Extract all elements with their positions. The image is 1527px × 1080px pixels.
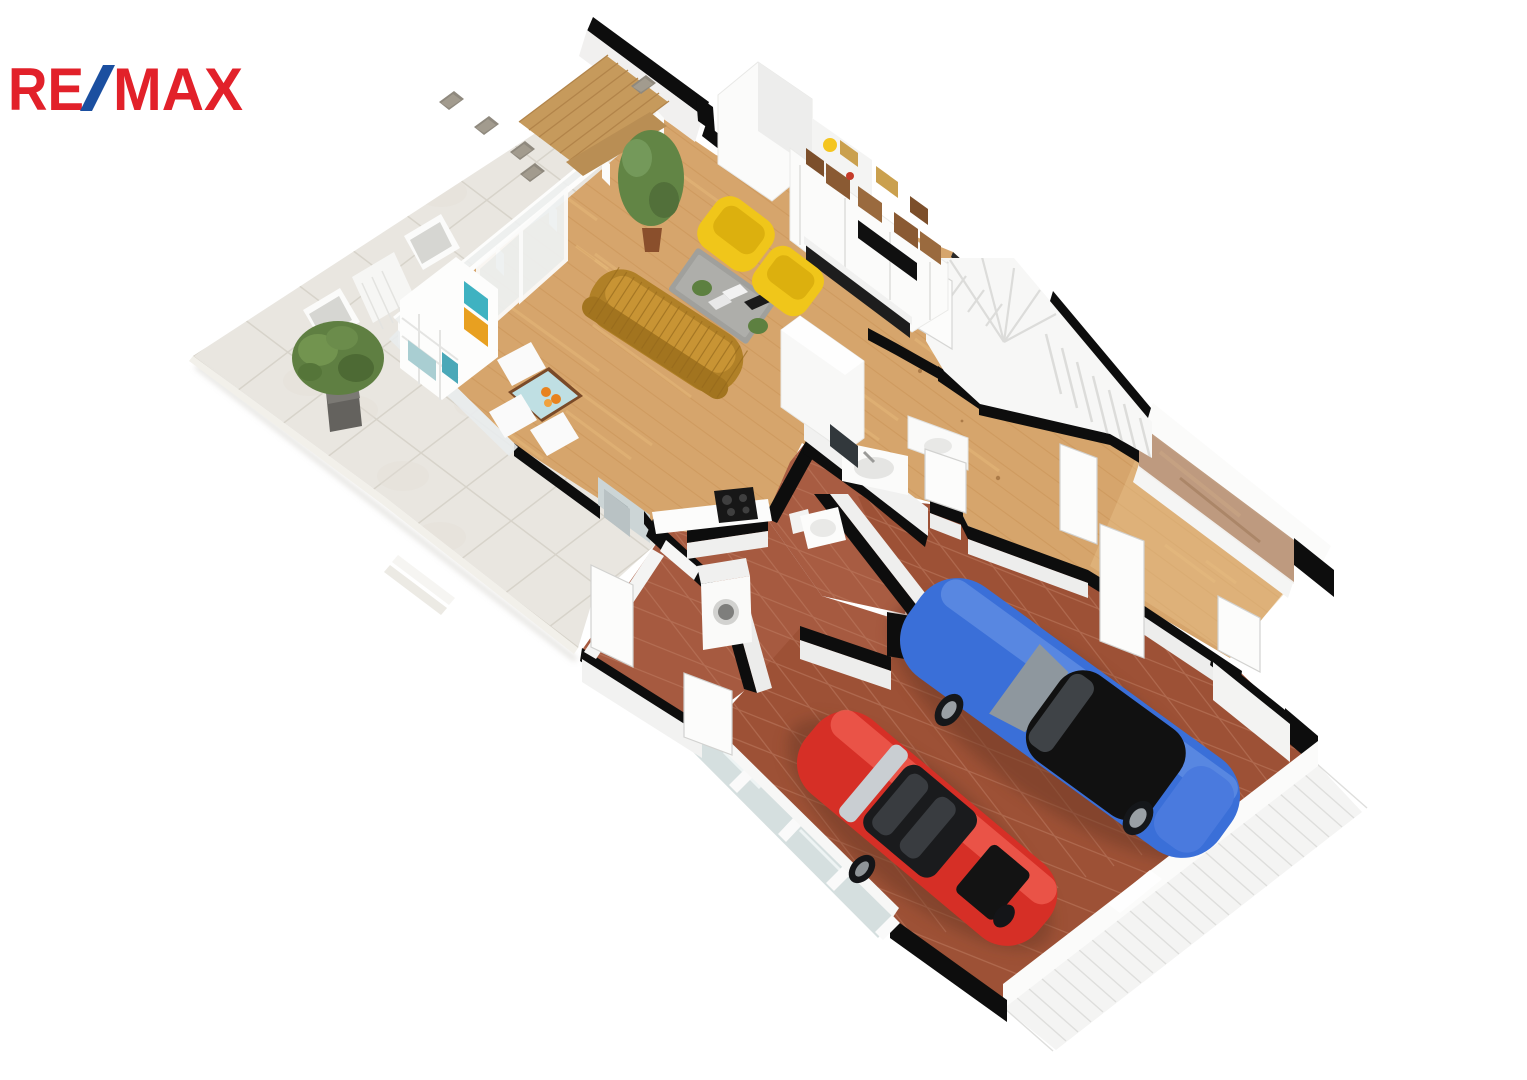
svg-text:MAX: MAX [113, 56, 243, 123]
svg-text:RE: RE [8, 56, 84, 123]
